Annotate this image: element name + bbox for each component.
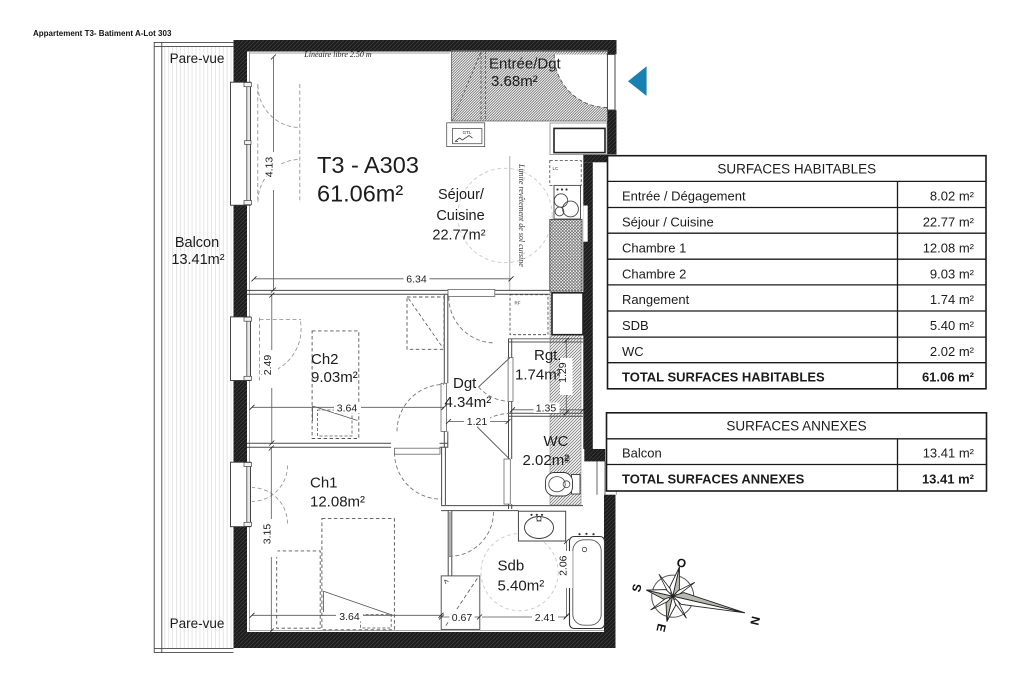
svg-text:WC: WC — [622, 344, 644, 359]
svg-text:Rgt.: Rgt. — [534, 347, 562, 364]
svg-text:Chambre 1: Chambre 1 — [622, 240, 686, 255]
svg-text:61.06 m²: 61.06 m² — [922, 370, 975, 385]
svg-text:Appartement T3- Batiment A-Lot: Appartement T3- Batiment A-Lot 303 — [33, 29, 172, 38]
svg-text:TOTAL SURFACES HABITABLES: TOTAL SURFACES HABITABLES — [622, 370, 825, 385]
svg-text:Ch2: Ch2 — [311, 351, 339, 368]
svg-text:Chambre 2: Chambre 2 — [622, 266, 686, 281]
svg-text:1.74 m²: 1.74 m² — [930, 292, 975, 307]
svg-text:Entrée / Dégagement: Entrée / Dégagement — [622, 189, 746, 204]
svg-text:13.41 m²: 13.41 m² — [922, 472, 975, 487]
svg-text:SURFACES HABITABLES: SURFACES HABITABLES — [717, 162, 876, 177]
svg-text:Séjour/: Séjour/ — [438, 187, 485, 203]
svg-text:3.68m²: 3.68m² — [491, 73, 538, 90]
svg-text:SDB: SDB — [622, 318, 649, 333]
svg-text:9.03m²: 9.03m² — [311, 369, 358, 386]
svg-text:Linéaire libre 2.50 m: Linéaire libre 2.50 m — [303, 50, 372, 59]
svg-text:3.15: 3.15 — [262, 524, 274, 545]
svg-text:2.06: 2.06 — [557, 555, 569, 576]
svg-text:9.03 m²: 9.03 m² — [930, 266, 975, 281]
svg-text:1.74m²: 1.74m² — [515, 367, 562, 384]
svg-text:Pare-vue: Pare-vue — [170, 616, 225, 631]
svg-text:GTL: GTL — [463, 130, 472, 135]
svg-text:LC: LC — [553, 166, 560, 171]
svg-text:TOTAL SURFACES ANNEXES: TOTAL SURFACES ANNEXES — [622, 472, 805, 487]
svg-text:3.64: 3.64 — [337, 403, 358, 415]
svg-text:12.08m²: 12.08m² — [310, 494, 365, 511]
svg-text:90: 90 — [566, 456, 572, 463]
svg-text:4.34m²: 4.34m² — [445, 394, 492, 411]
svg-text:2.49: 2.49 — [262, 355, 274, 376]
svg-text:0.67: 0.67 — [452, 612, 473, 624]
svg-text:Balcon: Balcon — [175, 235, 219, 251]
svg-text:22.77m²: 22.77m² — [432, 228, 485, 244]
svg-text:WC: WC — [544, 433, 569, 450]
svg-text:2.02m²: 2.02m² — [523, 452, 570, 469]
svg-text:Entrée/Dgt: Entrée/Dgt — [489, 56, 562, 73]
svg-text:Cuisine: Cuisine — [436, 208, 484, 224]
svg-text:Limite revêtement de sol cuisi: Limite revêtement de sol cuisine — [517, 163, 526, 267]
svg-text:1.21: 1.21 — [467, 416, 488, 428]
svg-text:22.77 m²: 22.77 m² — [923, 215, 975, 230]
svg-text:Ch1: Ch1 — [310, 475, 338, 492]
svg-text:6.34: 6.34 — [406, 273, 427, 285]
svg-text:2.02 m²: 2.02 m² — [930, 344, 975, 359]
svg-text:13.41m²: 13.41m² — [171, 252, 224, 268]
svg-text:T3 - A303: T3 - A303 — [317, 152, 419, 178]
svg-text:8.02 m²: 8.02 m² — [930, 189, 975, 204]
svg-text:12.08 m²: 12.08 m² — [923, 240, 975, 255]
svg-text:1.35: 1.35 — [536, 403, 557, 415]
svg-text:4.13: 4.13 — [264, 157, 276, 178]
svg-text:61.06m²: 61.06m² — [317, 181, 403, 207]
svg-text:SURFACES ANNEXES: SURFACES ANNEXES — [726, 419, 866, 434]
svg-text:Balcon: Balcon — [622, 446, 662, 461]
svg-text:Séjour / Cuisine: Séjour / Cuisine — [622, 215, 714, 230]
svg-text:Pare-vue: Pare-vue — [170, 51, 225, 66]
svg-text:3.64: 3.64 — [339, 611, 360, 623]
svg-text:Dgt: Dgt — [453, 375, 477, 392]
svg-text:2.41: 2.41 — [535, 612, 556, 624]
svg-text:RF: RF — [515, 301, 521, 306]
svg-text:5.40m²: 5.40m² — [498, 578, 545, 595]
svg-text:5.40 m²: 5.40 m² — [930, 318, 975, 333]
svg-text:Sdb: Sdb — [498, 558, 525, 575]
svg-text:1.29: 1.29 — [557, 362, 569, 383]
svg-text:13.41 m²: 13.41 m² — [923, 446, 975, 461]
svg-text:Rangement: Rangement — [622, 292, 690, 307]
